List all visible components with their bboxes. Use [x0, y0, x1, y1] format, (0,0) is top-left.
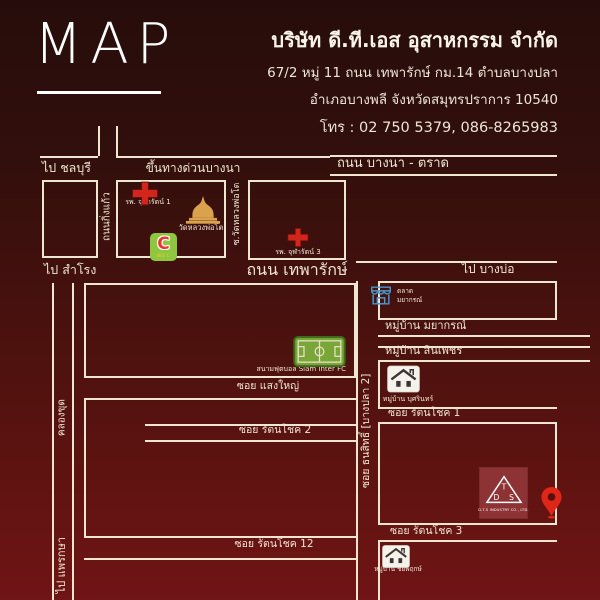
- map-page: MAP บริษัท ดี.ที.เอส อุสาหกรรม จำกัด 67/…: [0, 0, 600, 600]
- block-lowerleft-top-edge: [84, 398, 356, 400]
- road-label-khlong-khut: คลองขุด: [56, 383, 67, 453]
- road-kingkaew-stub-right: [116, 126, 118, 156]
- company-name: บริษัท ดี.ที.เอส อุสาหกรรม จำกัด: [267, 24, 558, 56]
- road-label-thanasit: ซอย ธนสิทธิ์ [บางปลา 2]: [361, 356, 373, 506]
- page-title: MAP: [34, 12, 178, 77]
- dts-letter-d: D: [493, 493, 499, 502]
- big-c-icon: C BIG C: [150, 233, 177, 261]
- soi-rattanachok2-bottom-edge: [145, 440, 356, 442]
- road-label-to-chonburi: ไป ชลบุรี: [42, 161, 91, 175]
- title-underline: [37, 91, 161, 94]
- canal-right-edge: [72, 283, 74, 600]
- temple-icon: [184, 196, 222, 224]
- road-sinphet-edge: [378, 360, 590, 362]
- location-pin-icon: [540, 486, 563, 519]
- village-butsarin-house-icon: [387, 365, 420, 393]
- road-label-bangna-trad: ถนน บางนา - ตราด: [323, 157, 463, 172]
- market-icon: [369, 284, 393, 307]
- road-label-rattanachok-12: ซอย รัตนโชค 12: [224, 539, 324, 551]
- road-label-rattanachok-3: ซอย รัตนโชค 3: [390, 526, 462, 538]
- football-field-icon: [293, 336, 346, 367]
- village-chaiyapruek-house-icon: [382, 545, 410, 568]
- hospital-cross-icon-1: [131, 181, 159, 206]
- road-bangna-trad-bottom-edge: [330, 174, 557, 176]
- block-lowerleft-left-edge: [84, 398, 86, 538]
- block-chaiyapruek-top-edge: [378, 540, 557, 542]
- dts-letter-t: T: [500, 483, 506, 492]
- big-c-subtext: BIG C: [157, 254, 170, 258]
- market-label: ตลาด มยากรณ์: [397, 287, 422, 305]
- market-label-line1: ตลาด: [397, 287, 422, 296]
- road-label-soi-wat: ซ.วัดหลวงพ่อโต: [232, 169, 242, 259]
- hospital-chularat3-label: รพ. จุฬารัตน์ 3: [266, 249, 330, 257]
- road-label-king-kaew: ถนนกิ่งแก้ว: [101, 172, 112, 262]
- hospital-cross-icon-3: [287, 227, 309, 248]
- village-butsarin-label: หมู่บ้าน บุศรินทร์: [368, 396, 448, 404]
- road-label-saeng-yai: ซอย แสงใหญ่: [213, 381, 323, 393]
- road-label-to-phraeksa: ไป แพรกษา: [56, 525, 68, 600]
- soi-rattanachok12-bottom-edge: [84, 558, 356, 560]
- address-line-1: 67/2 หมู่ 11 ถนน เทพารักษ์ กม.14 ตำบลบาง…: [267, 61, 558, 83]
- road-label-to-samrong: ไป สำโรง: [44, 263, 96, 277]
- dts-caption: D.T.S INDUSTRY CO., LTD.: [478, 508, 529, 512]
- soi-thanasit-left-edge: [356, 281, 358, 600]
- block-west-of-kingkaew: [42, 180, 98, 258]
- dts-letter-s: S: [509, 493, 514, 502]
- road-mayakorn-top-edge: [378, 335, 590, 337]
- road-thepharak-top-right-edge: [356, 261, 557, 263]
- big-c-letter: C: [157, 236, 169, 253]
- road-label-rattanachok-1: ซอย รัตนโชค 1: [388, 408, 460, 420]
- market-label-line2: มยากรณ์: [397, 296, 422, 305]
- village-mayakorn-label: หมู่บ้าน มยากรณ์: [385, 320, 466, 332]
- soi-rattanachok12-top-edge: [84, 536, 356, 538]
- block-dts: [378, 422, 557, 525]
- football-field-label: สนามฟุตบอล Siam Inter FC: [230, 366, 346, 374]
- road-top-left-edge: [40, 156, 98, 158]
- canal-left-edge: [52, 283, 54, 600]
- road-expressway-top-edge: [116, 156, 330, 158]
- address-line-2: อำเภอบางพลี จังหวัดสมุทรปราการ 10540: [267, 88, 558, 110]
- road-label-thepharak: ถนน เทพารักษ์: [227, 261, 367, 279]
- road-label-rattanachok-2: ซอย รัตนโชค 2: [220, 425, 330, 437]
- temple-label: วัดหลวงพ่อโต: [171, 224, 231, 232]
- company-info: บริษัท ดี.ที.เอส อุสาหกรรม จำกัด 67/2 หม…: [267, 24, 558, 139]
- dts-logo: T D S D.T.S INDUSTRY CO., LTD.: [479, 467, 528, 519]
- village-sinphet-label: หมู่บ้าน สินเพชร: [385, 345, 462, 357]
- road-kingkaew-stub-left: [98, 126, 100, 156]
- phone-number: โทร : 02 750 5379, 086-8265983: [267, 116, 558, 139]
- road-label-to-bangbo: ไป บางบ่อ: [462, 263, 515, 276]
- dts-triangle-icon: T D S: [485, 474, 523, 506]
